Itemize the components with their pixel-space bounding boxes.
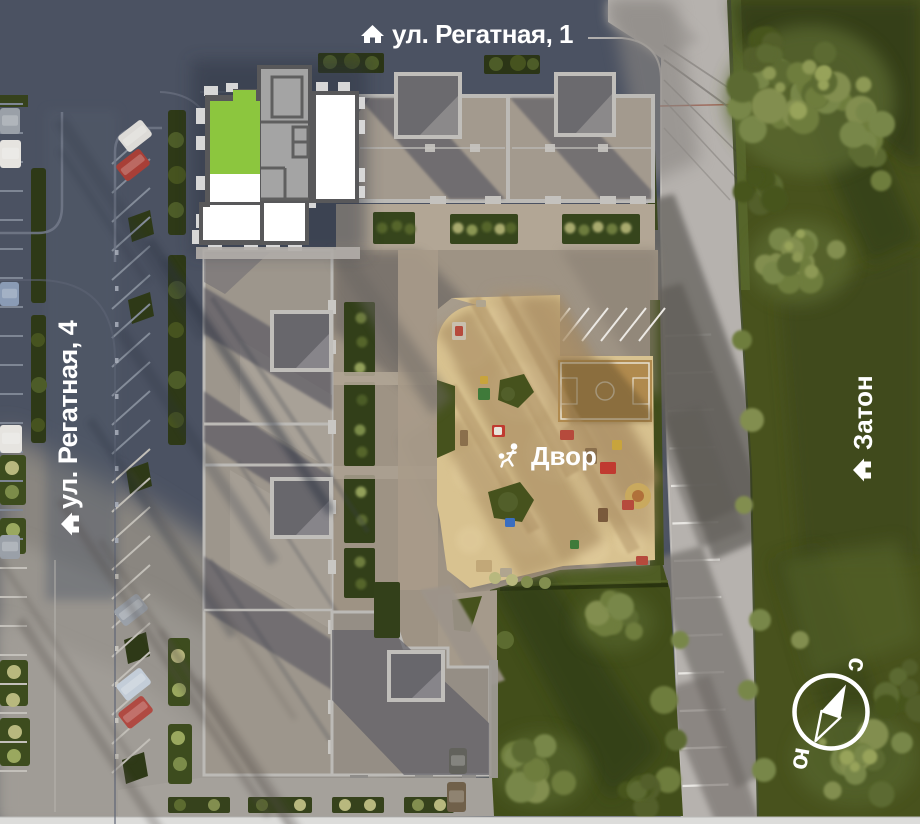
svg-text:ул. Регатная, 4: ул. Регатная, 4 — [53, 320, 83, 509]
svg-text:Двор: Двор — [531, 441, 597, 471]
svg-text:ул. Регатная, 1: ул. Регатная, 1 — [392, 19, 573, 49]
svg-text:Затон: Затон — [848, 375, 878, 450]
